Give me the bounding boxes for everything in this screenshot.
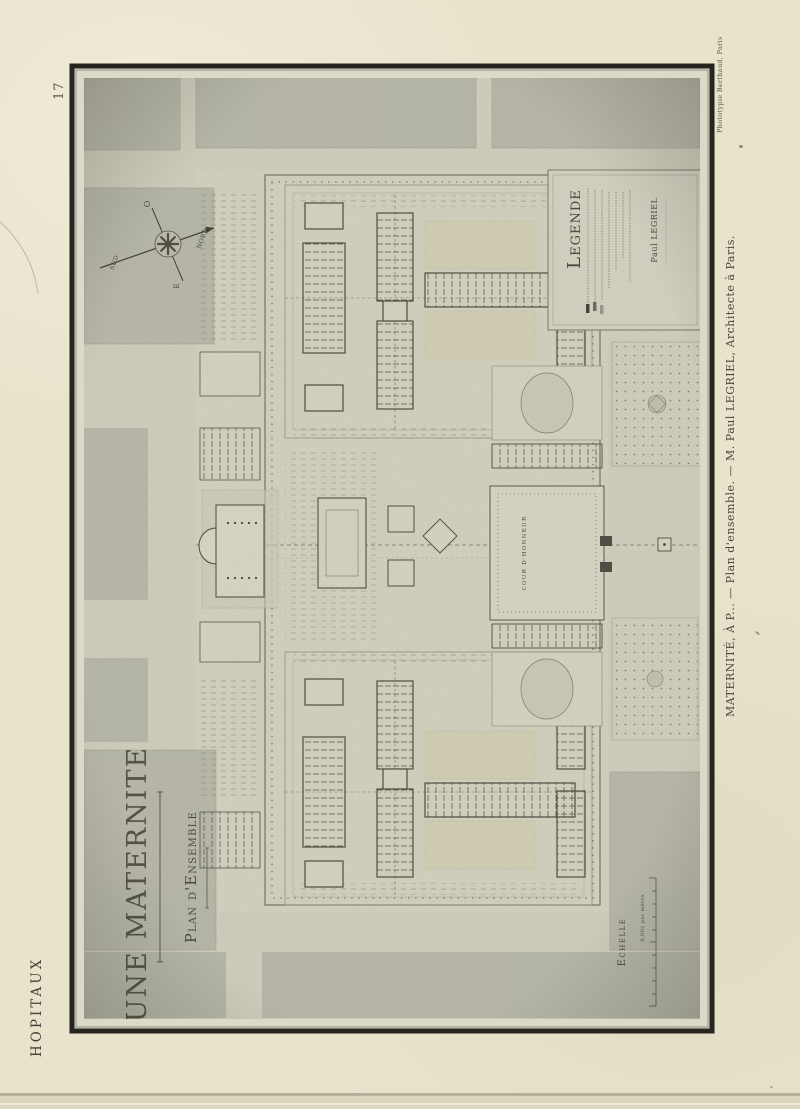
- photo-vignette: [84, 78, 700, 1019]
- plan-drawing: COUR D'HONNEUR: [84, 76, 704, 1022]
- book-page: { "page": { "number": "17", "series_titl…: [0, 0, 800, 1109]
- page-curl-mark: [0, 222, 38, 294]
- plate-graphic: COUR D'HONNEUR: [0, 0, 800, 1109]
